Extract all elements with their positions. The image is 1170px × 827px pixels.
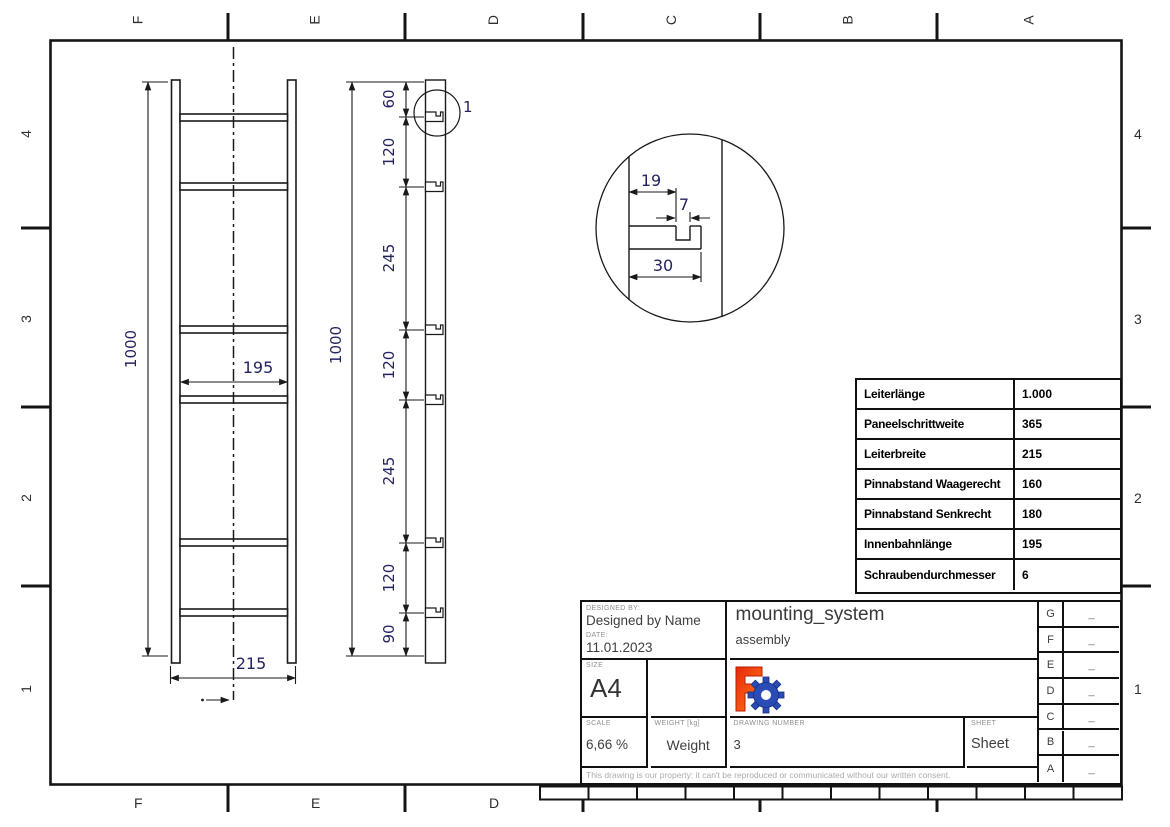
sheet-cell: SHEET Sheet — [967, 718, 1037, 768]
freecad-logo-icon — [730, 663, 788, 717]
revision-letter: G — [1039, 602, 1064, 626]
logo-cell — [730, 660, 1038, 718]
param-value: 365 — [1015, 410, 1120, 438]
param-value: 1.000 — [1015, 380, 1120, 408]
weight-value: Weight — [667, 737, 726, 753]
scale-value: 6,66 % — [586, 737, 646, 752]
param-value: 195 — [1015, 530, 1120, 558]
param-label: Pinnabstand Senkrecht — [857, 500, 1015, 528]
revision-row: A _ — [1039, 756, 1119, 782]
dim-front-inner-width: 195 — [243, 358, 274, 377]
dim-side-245b: 245 — [380, 457, 398, 486]
revision-value: _ — [1064, 653, 1119, 677]
table-row: Paneelschrittweite 365 — [857, 410, 1120, 440]
dim-side-120c: 120 — [380, 564, 398, 593]
dim-side-120b: 120 — [380, 351, 398, 380]
drawing-number-value: 3 — [734, 737, 963, 752]
scale-label: SCALE — [586, 719, 646, 728]
side-view-rail — [426, 80, 446, 663]
dim-side-height: 1000 — [327, 326, 345, 364]
param-value: 215 — [1015, 440, 1120, 468]
title-block: DESIGNED BY: Designed by Name DATE: 11.0… — [580, 600, 1122, 785]
size-value: A4 — [590, 673, 646, 704]
revision-row: D _ — [1039, 679, 1119, 705]
detail-hook-profile — [629, 140, 722, 317]
dim-side-120a: 120 — [380, 138, 398, 167]
revision-value: _ — [1064, 602, 1119, 626]
parameters-table: Leiterlänge 1.000 Paneelschrittweite 365… — [855, 378, 1122, 594]
grid-label-right-2: 2 — [1134, 490, 1142, 506]
revision-row: F _ — [1039, 628, 1119, 654]
dim-detail-19: 19 — [641, 171, 661, 190]
table-row: Leiterbreite 215 — [857, 440, 1120, 470]
dim-front-outer-width: 215 — [236, 654, 267, 673]
revision-value: _ — [1064, 756, 1119, 782]
dim-side-60: 60 — [380, 89, 398, 108]
disclaimer-text: This drawing is our property: it can't b… — [582, 769, 1037, 783]
grid-label-top-f: F — [129, 16, 145, 25]
drawing-number-label: DRAWING NUMBER — [734, 719, 963, 728]
param-value: 160 — [1015, 470, 1120, 498]
grid-label-top-d: D — [485, 15, 501, 25]
grid-label-left-1: 1 — [18, 685, 34, 693]
grid-label-left-2: 2 — [18, 494, 34, 502]
dim-detail-7: 7 — [679, 195, 689, 214]
param-value: 6 — [1015, 560, 1120, 590]
weight-cell: WEIGHT [kg] Weight — [651, 718, 728, 768]
dim-side-90: 90 — [380, 624, 398, 643]
sheet-value: Sheet — [971, 736, 1037, 752]
table-row: Leiterlänge 1.000 — [857, 380, 1120, 410]
size-label: SIZE — [586, 661, 646, 670]
revision-value: _ — [1064, 705, 1119, 729]
table-row: Innenbahnlänge 195 — [857, 530, 1120, 560]
revision-value: _ — [1064, 679, 1119, 703]
param-label: Schraubendurchmesser — [857, 560, 1015, 590]
grid-label-top-e: E — [307, 15, 323, 24]
front-right-rail — [288, 80, 297, 663]
revision-row: E _ — [1039, 653, 1119, 679]
dim-detail-30: 30 — [653, 256, 673, 275]
front-view-dimensions — [142, 82, 296, 684]
designer-cell: DESIGNED BY: Designed by Name DATE: 11.0… — [582, 602, 727, 660]
revision-letter: F — [1039, 628, 1064, 652]
grid-label-top-b: B — [840, 15, 856, 24]
revision-table: G _ F _ E _ D _ C _ B _ — [1037, 602, 1119, 782]
empty-cell — [651, 660, 728, 718]
size-cell: SIZE A4 — [582, 660, 648, 718]
table-row: Schraubendurchmesser 6 — [857, 560, 1120, 590]
param-label: Leiterbreite — [857, 440, 1015, 468]
designed-by-value: Designed by Name — [586, 613, 725, 628]
param-label: Leiterlänge — [857, 380, 1015, 408]
revision-row: C _ — [1039, 705, 1119, 731]
date-label: DATE: — [586, 631, 725, 640]
revision-letter: B — [1039, 731, 1064, 755]
grid-label-bottom-e: E — [311, 795, 320, 811]
revision-row: G _ — [1039, 602, 1119, 628]
grid-label-bottom-d: D — [489, 795, 499, 811]
param-label: Innenbahnlänge — [857, 530, 1015, 558]
revision-row: B _ — [1039, 731, 1119, 757]
dim-side-245a: 245 — [380, 244, 398, 273]
grid-label-right-1: 1 — [1134, 681, 1142, 697]
date-value: 11.01.2023 — [586, 640, 725, 655]
designed-by-label: DESIGNED BY: — [586, 604, 725, 613]
grid-label-right-4: 4 — [1134, 126, 1142, 142]
title-cell: mounting_system assembly — [730, 602, 1038, 660]
grid-label-bottom-f: F — [134, 795, 143, 811]
revision-letter: D — [1039, 679, 1064, 703]
revision-value: _ — [1064, 731, 1119, 755]
detail-callout-label: 1 — [463, 98, 473, 116]
scale-cell: SCALE 6,66 % — [582, 718, 648, 768]
param-value: 180 — [1015, 500, 1120, 528]
table-row: Pinnabstand Waagerecht 160 — [857, 470, 1120, 500]
scale-reference-strip — [540, 787, 1122, 800]
centerline-dot — [201, 699, 204, 702]
grid-label-top-c: C — [663, 15, 679, 25]
drawing-number-cell: DRAWING NUMBER 3 — [730, 718, 965, 768]
param-label: Paneelschrittweite — [857, 410, 1015, 438]
revision-value: _ — [1064, 628, 1119, 652]
grid-label-top-a: A — [1021, 15, 1037, 24]
weight-label: WEIGHT [kg] — [655, 719, 726, 728]
revision-letter: A — [1039, 756, 1064, 782]
sheet-label: SHEET — [971, 719, 1037, 728]
front-left-rail — [172, 80, 181, 663]
table-row: Pinnabstand Senkrecht 180 — [857, 500, 1120, 530]
grid-label-left-4: 4 — [18, 130, 34, 138]
drawing-sheet: 1000 195 215 — [0, 0, 1170, 827]
drawing-subtitle: assembly — [736, 632, 1038, 647]
grid-label-right-3: 3 — [1134, 311, 1142, 327]
dim-front-height: 1000 — [122, 330, 140, 368]
param-label: Pinnabstand Waagerecht — [857, 470, 1015, 498]
drawing-title: mounting_system — [736, 604, 1038, 626]
grid-label-left-3: 3 — [18, 315, 34, 323]
revision-letter: E — [1039, 653, 1064, 677]
revision-letter: C — [1039, 705, 1064, 729]
